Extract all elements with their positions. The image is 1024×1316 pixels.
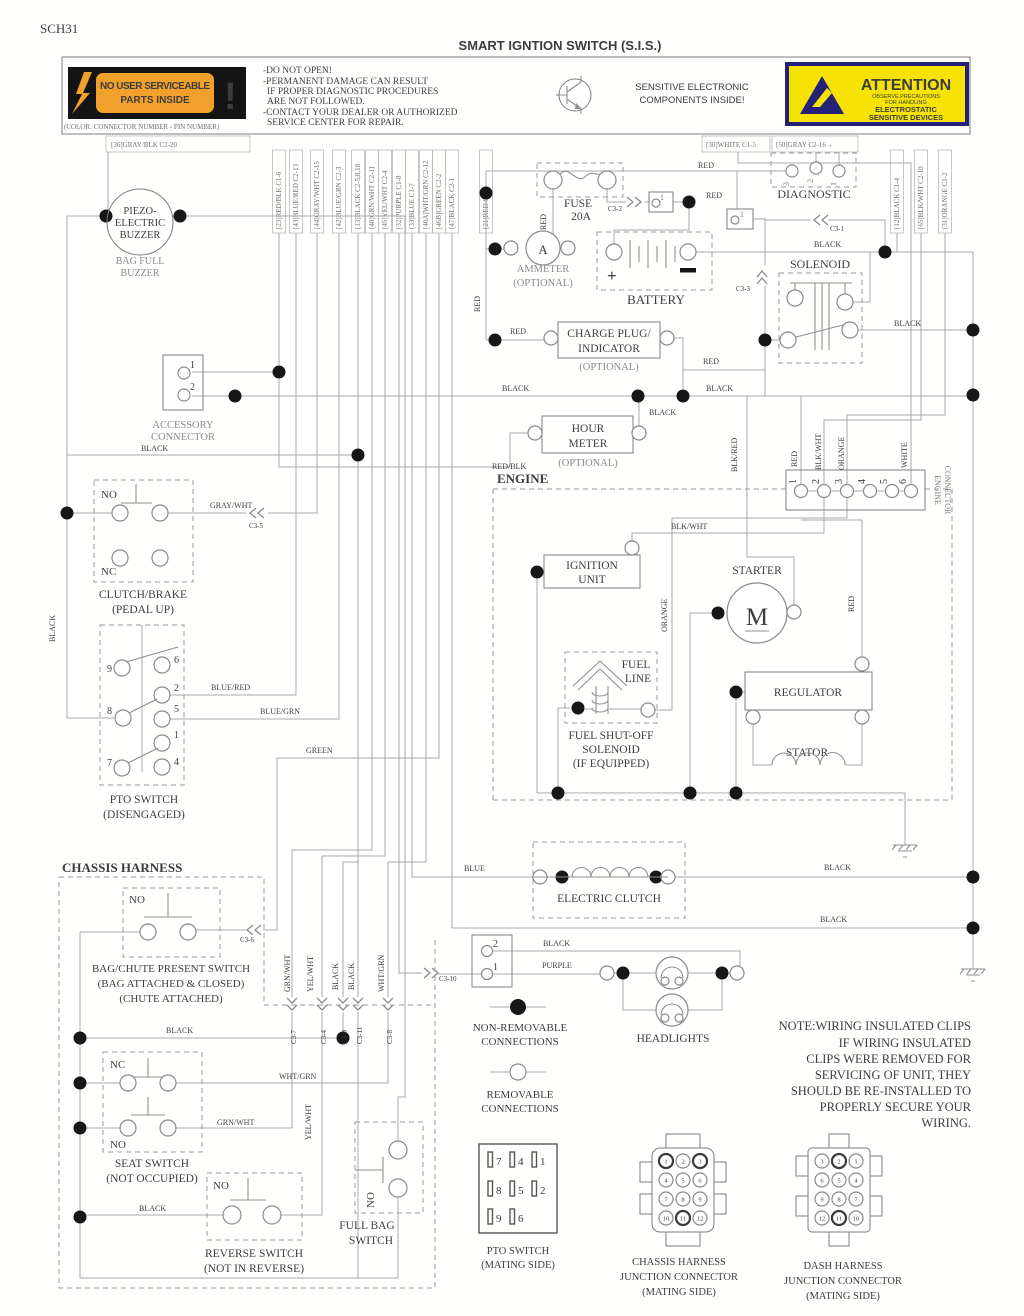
- terminal: [120, 1120, 136, 1136]
- terminal: [598, 171, 616, 189]
- contact-state-label: NO: [213, 1180, 229, 1192]
- pin-number: 3: [782, 182, 791, 186]
- lamp-icon: [656, 957, 688, 989]
- terminal: [114, 760, 130, 776]
- connection-legend: NON-REMOVABLE CONNECTIONS REMOVABLE CONN…: [473, 999, 568, 1115]
- dash-junction-connector: 3 2 1 6 5 4 9 8 7 12 11 10 DASH HARNESS …: [784, 1134, 902, 1302]
- junction-dot: [489, 243, 502, 256]
- pin-number: 8: [837, 1197, 840, 1204]
- pin-number: 9: [496, 1213, 502, 1225]
- note-line: PROPERLY SECURE YOUR: [820, 1100, 972, 1114]
- component-label: JUNCTION CONNECTOR: [620, 1272, 738, 1283]
- stator: STATOR: [772, 747, 845, 765]
- connector-ref: C3-5: [249, 522, 264, 530]
- label-line: NO USER SERVICEABLE: [100, 81, 210, 92]
- legend-label: CONNECTIONS: [481, 1036, 559, 1048]
- terminal: [730, 966, 744, 980]
- junction-dot: [716, 967, 729, 980]
- component-label: JUNCTION CONNECTOR: [784, 1276, 902, 1287]
- wire-color-label: YEL/WHT: [306, 956, 315, 992]
- junction-dot: [879, 246, 892, 259]
- wiring-schematic: SCH31 SMART IGNTION SWITCH (S.I.S.) NO U…: [0, 0, 1024, 1316]
- component-label: 20A: [571, 211, 592, 223]
- pin-number: 3: [698, 1159, 701, 1166]
- pin-number: 8: [496, 1185, 502, 1197]
- pin-number: 1: [829, 182, 838, 186]
- warning-line: -PERMANENT DAMAGE CAN RESULT: [263, 77, 428, 87]
- seat-switch: NC NO SEAT SWITCH (NOT OCCUPIED): [103, 1052, 202, 1185]
- wire-id-label: [40]GRN/WHT C2-11: [368, 165, 376, 229]
- sensitive-note: COMPONENTS INSIDE!: [639, 95, 744, 106]
- component-label: BATTERY: [627, 292, 685, 307]
- pin-number: 2: [837, 1159, 840, 1166]
- junction-dot: [967, 922, 980, 935]
- pin-number: 10: [853, 1216, 860, 1223]
- wire-color-label: BLACK: [141, 444, 168, 453]
- contact-state-label: NO: [129, 894, 145, 906]
- note-line: SERVICING OF UNIT, THEY: [815, 1068, 971, 1082]
- component-label: CHASSIS HARNESS: [632, 1257, 726, 1268]
- terminal: [818, 485, 831, 498]
- junction-dot: [174, 210, 187, 223]
- terminal: [152, 505, 168, 521]
- pin-number: 9: [698, 1197, 701, 1204]
- pin-number: 12: [819, 1216, 826, 1223]
- wire-color-label: ORANGE: [660, 599, 669, 632]
- terminal: [528, 426, 542, 440]
- junction-dot: [552, 787, 565, 800]
- wire-color-label: WHT/GRN: [377, 954, 386, 992]
- pin-number: 4: [857, 479, 868, 484]
- contact-state-label: NO: [101, 489, 117, 501]
- component-label: LINE: [625, 673, 651, 685]
- junction-dot: [273, 366, 286, 379]
- component-label: IGNITION: [566, 560, 618, 572]
- left-wire-columns: [23]RED/BLK C1-6 [43]BLUE/RED C2-13 [44]…: [273, 150, 493, 233]
- exclamation-icon: !: [224, 76, 237, 118]
- pin-number: 1: [174, 730, 179, 741]
- terminal: [112, 505, 128, 521]
- connector-ref: C3-8: [386, 1030, 394, 1045]
- junction-dot: [684, 787, 697, 800]
- legend-label: REMOVABLE: [486, 1089, 553, 1101]
- terminal: [905, 485, 918, 498]
- light-connector: 2 1: [472, 935, 512, 987]
- connector-ref: C3-4: [320, 1030, 328, 1045]
- pin-number: 5: [174, 704, 179, 715]
- connector-ref: C3-10: [439, 975, 457, 983]
- terminal: [652, 199, 660, 207]
- component-label: CLUTCH/BRAKE: [99, 589, 187, 601]
- contact-state-label: NC: [101, 566, 116, 578]
- terminal: [886, 485, 899, 498]
- connector-ref: C3-6: [240, 936, 255, 944]
- component-label: BAG/CHUTE PRESENT SWITCH: [92, 963, 250, 975]
- attention-title: ATTENTION: [861, 77, 951, 94]
- connector-chevron: [353, 998, 363, 1010]
- region-label: CHASSIS HARNESS: [62, 860, 182, 875]
- pin-number: 8: [107, 706, 112, 717]
- wire-color-label: BLACK: [331, 963, 340, 990]
- pin-number: 12: [697, 1216, 704, 1223]
- component-label: SOLENOID: [582, 744, 640, 756]
- connector-chevron: [814, 215, 828, 225]
- wire-id-label: [23]RED/BLK C1-6: [275, 171, 283, 229]
- junction-dot: [967, 324, 980, 337]
- component-label: FUEL: [622, 659, 651, 671]
- pin-number: 7: [107, 758, 112, 769]
- pin-number: 9: [820, 1197, 823, 1204]
- terminal: [115, 710, 131, 726]
- wire-id-label: [50]GRAY C2-16→: [776, 141, 833, 149]
- motor-symbol: M: [746, 604, 768, 631]
- connector-ref: C3-11: [356, 1026, 364, 1044]
- wire-id-label: [42]BLUE/GRN C2-3: [335, 166, 343, 229]
- wire-color-label: BLK/WHT: [814, 433, 823, 470]
- wire-color-label: BLUE/RED: [211, 683, 250, 692]
- pin-number: 4: [518, 1156, 524, 1168]
- component-label: (NOT IN REVERSE): [204, 1263, 304, 1275]
- wire-id-label: [46B]GREEN C2-2: [435, 173, 443, 229]
- component-label: FUSE: [564, 198, 592, 210]
- wire-color-label: RED: [698, 161, 714, 170]
- wire-color-label: BLUE/GRN: [260, 707, 300, 716]
- component-label: INDICATOR: [578, 343, 640, 355]
- legend-label: CONNECTIONS: [481, 1103, 559, 1115]
- wire-id-label: [43]BLUE/RED C2-13: [292, 163, 300, 229]
- wire-id-label: [40A]WHT/GRN C2-12: [422, 160, 430, 229]
- wire-color-label: BLACK: [894, 319, 921, 328]
- terminal: [837, 294, 853, 310]
- junction-dot: [61, 507, 74, 520]
- ground-icon: [960, 969, 985, 981]
- ground-icons: [892, 845, 985, 981]
- pin-number: 6: [518, 1213, 524, 1225]
- warning-line: SERVICE CENTER FOR REPAIR.: [267, 118, 404, 128]
- component-label: FUEL SHUT-OFF: [568, 730, 653, 742]
- wire-color-label: WHT/GRN: [279, 1072, 317, 1081]
- terminal: [112, 550, 128, 566]
- non-removable-dot-icon: [510, 999, 526, 1015]
- wire-color-label: RED: [539, 214, 548, 230]
- chassis-junction-connector: 1 2 3 4 5 6 7 8 9 10 11 12 CHASSIS HARNE…: [620, 1134, 738, 1298]
- component-label: BAG FULL: [116, 256, 165, 267]
- connector-chevron: [317, 998, 327, 1010]
- connector-ref: C3-3: [736, 285, 751, 293]
- pin-number: 3: [834, 479, 845, 484]
- component-label: PTO SWITCH: [110, 794, 178, 806]
- component-label: CONNECTOR: [943, 466, 952, 515]
- junction-dot: [74, 1032, 87, 1045]
- note-line: NOTE:WIRING INSULATED CLIPS: [779, 1019, 971, 1033]
- connector-chevron: [247, 925, 261, 935]
- component-label: (MATING SIDE): [481, 1260, 555, 1271]
- wire-color-label: BLK/WHT: [671, 522, 708, 531]
- plus-icon: +: [607, 266, 617, 285]
- pin-number: 3: [820, 1159, 823, 1166]
- color-note: (COLOR: CONNECTOR NUMBER - PIN NUMBER): [64, 123, 220, 131]
- component-label: REVERSE SWITCH: [205, 1248, 303, 1260]
- pin-number: 2: [540, 1185, 546, 1197]
- component-label: ELECTRIC CLUTCH: [557, 893, 661, 905]
- wire-id-label: [30]WHITE C1-5: [706, 141, 756, 149]
- terminal: [114, 660, 130, 676]
- contact-state-label: NO: [365, 1192, 377, 1208]
- junction-dot: [967, 871, 980, 884]
- engine-connector: 1 2 3 4 5 6 ENGINE CONNECTOR: [786, 466, 952, 515]
- terminal: [263, 1206, 281, 1224]
- wire-color-label: GRAY/WHT: [210, 501, 252, 510]
- wire-id-label: [36]GRAY/BLK C2-20: [111, 141, 178, 149]
- minus-icon: [680, 268, 696, 273]
- component-label: (MATING SIDE): [806, 1291, 880, 1302]
- component-label: (CHUTE ATTACHED): [119, 993, 223, 1005]
- clutch-brake-switch: NO NC CLUTCH/BRAKE (PEDAL UP): [94, 480, 193, 616]
- junction-dot: [531, 566, 544, 579]
- warning-line: -DO NOT OPEN!: [263, 66, 332, 76]
- pin-number: 5: [879, 479, 890, 484]
- junction-dot: [100, 210, 113, 223]
- pin-box-b: 1: [727, 209, 753, 229]
- wire-color-label: RED: [847, 596, 856, 612]
- ground-icon: [892, 845, 917, 857]
- diagnostic-connector: 3 2 1 DIAGNOSTIC: [771, 153, 856, 201]
- junction-dot: [480, 187, 493, 200]
- component-label: STARTER: [732, 565, 782, 577]
- pin-number: 11: [836, 1216, 842, 1223]
- component-label: (IF EQUIPPED): [573, 758, 650, 770]
- junction-dot: [229, 390, 242, 403]
- component-label: (OPTIONAL): [579, 362, 639, 373]
- component-label: (PEDAL UP): [112, 604, 174, 616]
- terminal: [154, 711, 170, 727]
- terminal: [482, 969, 493, 980]
- wire-color-label: RED: [790, 451, 799, 467]
- pin-number: 8: [681, 1197, 684, 1204]
- terminal: [833, 165, 845, 177]
- component-label: BUZZER: [120, 230, 161, 241]
- terminal: [152, 550, 168, 566]
- ignition-unit: IGNITION UNIT: [544, 541, 640, 588]
- terminal: [841, 485, 854, 498]
- junction-dot: [730, 686, 743, 699]
- component-label: (OPTIONAL): [513, 278, 573, 289]
- contact-state-label: NC: [110, 1059, 125, 1071]
- wire-color-label: BLACK: [706, 384, 733, 393]
- region-label: ENGINE: [497, 471, 548, 486]
- component-label: ACCESSORY: [152, 420, 214, 431]
- terminal: [864, 485, 877, 498]
- component-label: PIEZO-: [123, 206, 157, 217]
- terminal: [544, 331, 558, 345]
- terminal: [842, 322, 858, 338]
- wire-color-label: BLACK: [649, 408, 676, 417]
- terminal: [606, 244, 622, 260]
- pin-number: 1: [740, 210, 744, 219]
- wire-color-label: BLACK: [166, 1026, 193, 1035]
- junction-dot: [683, 196, 696, 209]
- terminal: [855, 710, 869, 724]
- warning-line: IF PROPER DIAGNOSTIC PROCEDURES: [267, 87, 438, 97]
- label-line: PARTS INSIDE: [120, 95, 190, 106]
- junction-dot: [677, 390, 690, 403]
- component-label: ENGINE: [933, 475, 942, 505]
- wire-id-label: [33]BLUE C1-7: [408, 183, 416, 229]
- terminal: [178, 389, 190, 401]
- junction-dot: [74, 1077, 87, 1090]
- pin-number: 5: [681, 1178, 684, 1185]
- warning-line: ARE NOT FOLLOWED.: [267, 97, 365, 107]
- terminal: [160, 1120, 176, 1136]
- accessory-connector: 1 2 ACCESSORY CONNECTOR: [151, 355, 215, 443]
- wire-color-label: RED: [510, 327, 526, 336]
- transistor-icon: [556, 76, 591, 114]
- solenoid: SOLENOID: [779, 257, 862, 363]
- wiring-note: NOTE:WIRING INSULATED CLIPS IF WIRING IN…: [779, 1019, 972, 1130]
- pto-mating-connector: 7 4 1 8 5 2 9 6 PTO SWITCH (MATING SIDE): [479, 1144, 557, 1271]
- pin-number: 1: [540, 1156, 546, 1168]
- note-line: WIRING.: [921, 1116, 971, 1130]
- note-line: CLIPS WERE REMOVED FOR: [806, 1052, 971, 1066]
- component-label: DASH HARNESS: [803, 1261, 882, 1272]
- schematic-page: SCH31 SMART IGNTION SWITCH (S.I.S.) NO U…: [0, 0, 1024, 1316]
- component-label: (MATING SIDE): [642, 1287, 716, 1298]
- wire-color-label: YEL/WHT: [304, 1104, 313, 1140]
- pin-number: 5: [837, 1178, 840, 1185]
- terminal: [178, 367, 190, 379]
- terminal: [389, 1141, 407, 1159]
- meter-symbol: A: [538, 242, 548, 257]
- warning-text: -DO NOT OPEN! -PERMANENT DAMAGE CAN RESU…: [263, 66, 458, 128]
- component-label: BUZZER: [121, 268, 160, 279]
- wire-id-label: [65]BLK/WHT C2-10: [917, 166, 925, 229]
- pin-number: 5: [518, 1185, 524, 1197]
- junction-dot: [730, 787, 743, 800]
- junction-dot: [489, 334, 502, 347]
- wire-color-label: BLACK: [139, 1204, 166, 1213]
- component-label: CHARGE PLUG/: [567, 328, 651, 340]
- bag-chute-switch: NO BAG/CHUTE PRESENT SWITCH (BAG ATTACHE…: [92, 888, 250, 1005]
- sensitive-note: SENSITIVE ELECTRONIC: [635, 82, 749, 93]
- connector-chevron: [338, 998, 348, 1010]
- wire-color-label: BLACK: [820, 915, 847, 924]
- pin-number: 2: [174, 683, 179, 694]
- wire-id-label: [47]BLACK C2-1: [448, 177, 456, 229]
- pin-number: 10: [663, 1216, 670, 1223]
- pin-number: 2: [806, 179, 815, 183]
- connector-chevron: [383, 998, 393, 1010]
- pin-number: 6: [174, 655, 179, 666]
- wire-color-label: BLACK: [824, 863, 851, 872]
- terminal: [641, 703, 655, 717]
- component-label: SEAT SWITCH: [115, 1158, 189, 1170]
- terminal: [482, 946, 493, 957]
- sheet-id: SCH31: [40, 21, 78, 36]
- wire-color-label: GRN/WHT: [283, 955, 292, 992]
- junction-dot: [74, 1211, 87, 1224]
- terminal: [787, 605, 801, 619]
- terminal: [160, 1075, 176, 1091]
- component-label: PTO SWITCH: [487, 1246, 550, 1257]
- wire-color-label: WHITE: [900, 442, 909, 468]
- junction-dot: [632, 390, 645, 403]
- connector-chevron: [287, 998, 297, 1010]
- junction-dot: [74, 1122, 87, 1135]
- terminal: [180, 924, 196, 940]
- contact-state-label: NO: [110, 1139, 126, 1151]
- wire-id-label: [44]GRAY/WHT C2-15: [313, 161, 321, 229]
- terminal: [504, 241, 518, 255]
- wire-id-label: [32]PURPLE C1-8: [395, 175, 403, 229]
- fuse: FUSE 20A: [537, 163, 623, 223]
- connector-chevron: [424, 968, 438, 978]
- electric-clutch: ELECTRIC CLUTCH: [533, 842, 685, 918]
- pin-number: 2: [493, 939, 498, 950]
- pin-number: 6: [898, 479, 909, 484]
- terminal: [746, 710, 760, 724]
- terminal: [223, 1206, 241, 1224]
- connector-ref: C3-9: [341, 1030, 349, 1045]
- component-label: HOUR: [572, 423, 605, 435]
- wire-color-label: RED/BLK: [492, 462, 526, 471]
- warning-line: -CONTACT YOUR DEALER OR AUTHORIZED: [263, 108, 458, 118]
- junction-dot: [759, 334, 772, 347]
- terminal: [787, 290, 803, 306]
- junction-dot: [617, 967, 630, 980]
- component-label: REGULATOR: [774, 687, 842, 699]
- component-label: (DISENGAGED): [103, 809, 185, 821]
- junction-dot: [712, 607, 725, 620]
- terminal: [810, 162, 822, 174]
- lamp-icon: [656, 994, 688, 1026]
- component-label: FULL BAG: [339, 1220, 394, 1232]
- connector-ref: C3-2: [608, 205, 623, 213]
- wire-id-label: [31]ORANGE C1-2: [941, 172, 949, 229]
- wire-color-label: BLACK: [543, 939, 570, 948]
- wire-color-label: BLACK: [814, 240, 841, 249]
- pin-number: 2: [190, 382, 195, 393]
- svg-text:SENSITIVE DEVICES: SENSITIVE DEVICES: [869, 113, 943, 122]
- wire-color-label: BLUE: [464, 864, 485, 873]
- component-label: ELECTRIC: [115, 218, 165, 229]
- component-label: (BAG ATTACHED & CLOSED): [98, 978, 245, 990]
- component-label: UNIT: [578, 574, 605, 586]
- terminal: [600, 966, 614, 980]
- wire-id-label: [12]BLACK C1-4: [893, 177, 901, 229]
- component-label: AMMETER: [517, 264, 570, 275]
- wire-color-label: GREEN: [306, 746, 333, 755]
- legend-label: NON-REMOVABLE: [473, 1022, 568, 1034]
- terminal: [660, 331, 674, 345]
- note-line: SHOULD BE RE-INSTALLED TO: [791, 1084, 971, 1098]
- starter-motor: STARTER M: [727, 565, 801, 643]
- component-label: CONNECTOR: [151, 432, 215, 443]
- component-label: (NOT OCCUPIED): [106, 1173, 198, 1185]
- wire-color-label: GRN/WHT: [217, 1118, 254, 1127]
- attention-label: ATTENTION OBSERVE PRECAUTIONS FOR HANDLI…: [787, 64, 967, 124]
- connector-chevron: [757, 271, 767, 284]
- terminal: [120, 1075, 136, 1091]
- terminal: [154, 657, 170, 673]
- terminal: [780, 332, 796, 348]
- terminal: [625, 541, 639, 555]
- ammeter: A AMMETER (OPTIONAL): [504, 231, 575, 289]
- no-user-serviceable-label: NO USER SERVICEABLE PARTS INSIDE !: [68, 67, 246, 119]
- wire-id-label: [13]BLACK C2-5,8,18: [354, 163, 362, 229]
- pto-switch: 9 6 2 8 5 1 7 4 PTO SWITCH (DISENGAGED): [100, 625, 185, 821]
- wire-color-label: RED: [706, 191, 722, 200]
- header: SCH31 SMART IGNTION SWITCH (S.I.S.) NO U…: [40, 21, 970, 134]
